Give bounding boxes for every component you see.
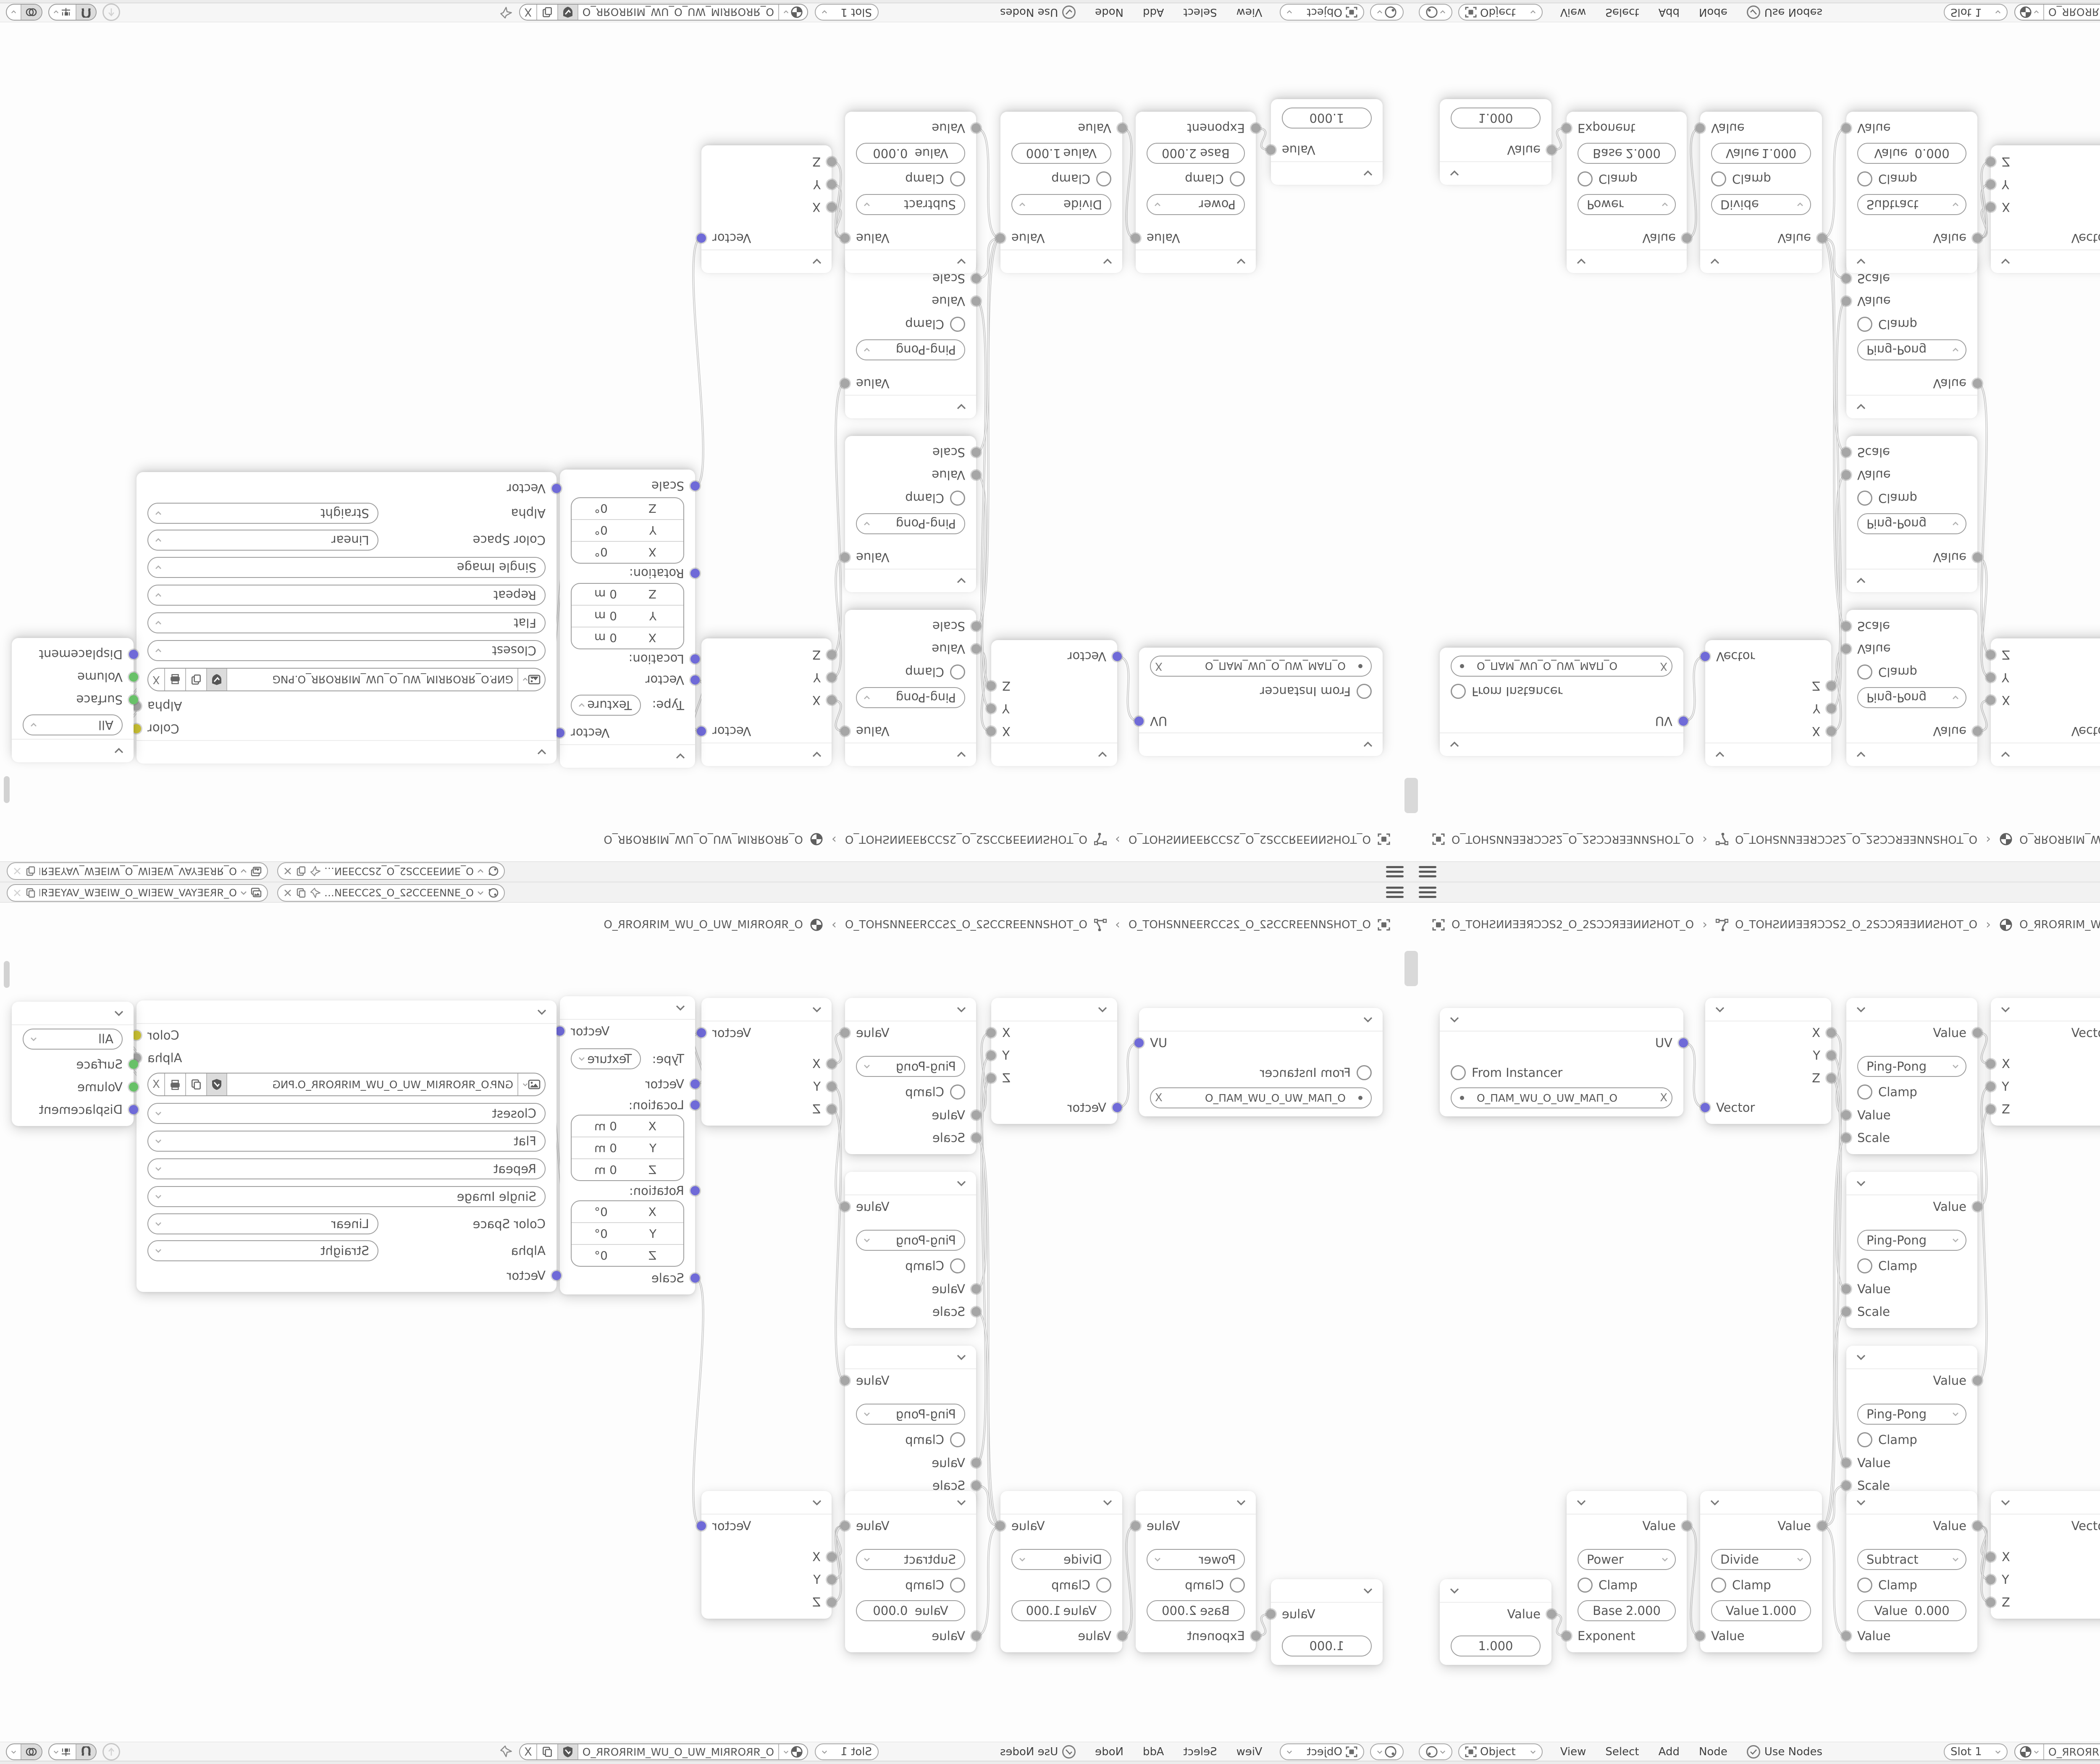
node-header[interactable] <box>12 1002 134 1025</box>
material-slot-dropdown[interactable]: Slot 1 <box>815 1743 879 1760</box>
copy-icon[interactable] <box>296 887 307 898</box>
unlink-button[interactable]: X <box>520 5 536 20</box>
checkbox-clamp[interactable]: Clamp <box>1700 1573 1822 1597</box>
dropdown[interactable]: Divide <box>1700 191 1822 218</box>
dropdown[interactable]: Power <box>1136 191 1256 218</box>
node-header[interactable] <box>701 249 832 273</box>
overlays-icon[interactable] <box>21 1744 42 1759</box>
editor-type-button[interactable] <box>1370 4 1404 21</box>
scene-selector[interactable]: O_ƎͶͶƎƎƆƆS2_O_2SƆƆƎƎͶ… <box>277 862 505 880</box>
node-header[interactable] <box>701 998 832 1021</box>
node-collapse-icon[interactable] <box>536 1009 547 1015</box>
node-collapse-icon[interactable] <box>1856 259 1866 265</box>
dropdown[interactable]: Closest <box>136 637 556 664</box>
region-edge-handle[interactable] <box>1411 778 1418 813</box>
dropdown[interactable]: Ping-Pong <box>845 684 976 711</box>
node-header[interactable] <box>1846 998 1977 1021</box>
node-collapse-icon[interactable] <box>1097 1006 1108 1013</box>
node-uvmap[interactable]: UVFrom InstancerO_ПAM_WU_O_UW_MAП_OX <box>1139 648 1383 756</box>
node-collapse-icon[interactable] <box>1102 1499 1113 1506</box>
vector-xyz-fields[interactable]: X0 mY0 mZ0 m <box>560 1115 695 1181</box>
node-collapse-icon[interactable] <box>1714 1006 1725 1013</box>
node-header[interactable] <box>560 744 695 768</box>
node-header[interactable] <box>1846 1172 1977 1195</box>
menu-add[interactable]: Add <box>1659 6 1680 18</box>
view-layer-selector[interactable]: O_ЯRƎEYAV_WƎEIW_O_WIƎEW_VAYƎEЯR_O <box>7 862 268 880</box>
node-collapse-icon[interactable] <box>1449 742 1460 748</box>
node-collapse-icon[interactable] <box>536 749 547 756</box>
node-pp2[interactable]: ValuePing-PongClampValueScale <box>1846 436 1977 592</box>
checkbox-clamp[interactable]: Clamp <box>1846 660 1977 684</box>
node-header[interactable] <box>12 739 134 762</box>
checkbox-clamp[interactable]: Clamp <box>1846 167 1977 191</box>
node-header[interactable] <box>1991 1491 2100 1515</box>
node-collapse-icon[interactable] <box>675 1005 686 1011</box>
value-field[interactable]: 1.000 <box>1271 1632 1383 1660</box>
menu-node[interactable]: Node <box>1095 6 1123 18</box>
dropdown[interactable]: Subtract <box>845 191 976 218</box>
dropdown[interactable]: Ping-Pong <box>1846 1053 1977 1080</box>
labeled-dropdown[interactable]: AlphaStraight <box>136 1237 556 1264</box>
value-field[interactable]: 1.000 <box>1440 104 1551 132</box>
node-pp3[interactable]: ValuePing-PongClampValueScale <box>1846 262 1977 418</box>
dropdown[interactable]: Ping-Pong <box>845 1400 976 1428</box>
node-pp2[interactable]: ValuePing-PongClampValueScale <box>845 436 976 592</box>
node-sepxyz[interactable]: XYZVector <box>1705 640 1831 766</box>
node-header[interactable] <box>845 249 976 273</box>
material-browse-button[interactable] <box>2015 5 2044 20</box>
image-datablock[interactable]: GИP.O_ЯROЯRIM_WU_O_UW_MIЯROЯR_O.PNGX <box>136 1069 556 1100</box>
node-collapse-icon[interactable] <box>1856 1354 1866 1360</box>
checkbox-clamp[interactable]: Clamp <box>1136 167 1256 191</box>
node-mapping[interactable]: VectorType:TextureVectorLocation:X0 mY0 … <box>560 470 695 768</box>
node-power[interactable]: ValuePowerClampBase2.000Exponent <box>1136 112 1256 273</box>
node-power[interactable]: ValuePowerClampBase2.000Exponent <box>1567 1491 1687 1652</box>
menu-view[interactable]: View <box>1236 1746 1263 1758</box>
node-combine_top[interactable]: VectorXYZ <box>701 998 832 1126</box>
checkbox-clamp[interactable]: Clamp <box>1000 1573 1122 1597</box>
node-header[interactable] <box>1271 161 1383 185</box>
menu-node[interactable]: Node <box>1699 6 1727 18</box>
node-collapse-icon[interactable] <box>1102 259 1113 265</box>
node-header[interactable] <box>845 569 976 592</box>
node-combine_b[interactable]: VectorXYZ <box>701 1491 832 1619</box>
snap-settings-icon[interactable] <box>49 1744 76 1759</box>
dropdown[interactable]: All <box>12 711 134 739</box>
node-pp3[interactable]: ValuePing-PongClampValueScale <box>1846 1346 1977 1502</box>
node-header[interactable] <box>1000 1491 1122 1515</box>
node-value_b[interactable]: Value1.000 <box>1271 1579 1383 1665</box>
node-sepxyz[interactable]: XYZVector <box>991 640 1117 766</box>
menu-node[interactable]: Node <box>1699 1746 1727 1758</box>
node-header[interactable] <box>845 1346 976 1369</box>
value-field[interactable]: Base2.000 <box>1567 1597 1687 1625</box>
material-slot-dropdown[interactable]: Slot 1 <box>1944 1743 2008 1760</box>
value-field[interactable]: Value1.000 <box>1700 139 1822 167</box>
labeled-dropdown[interactable]: Color SpaceLinear <box>136 1210 556 1237</box>
checkbox-clamp[interactable]: Clamp <box>845 1254 976 1278</box>
node-combine_b[interactable]: VectorXYZ <box>1991 1491 2100 1619</box>
node-collapse-icon[interactable] <box>2000 259 2011 265</box>
node-subtract[interactable]: ValueSubtractClampValue0.000Value <box>1846 112 1977 273</box>
close-icon[interactable]: X <box>1656 656 1672 676</box>
dropdown[interactable]: Ping-Pong <box>1846 1226 1977 1254</box>
menu-hamburger-icon[interactable] <box>1386 887 1404 898</box>
node-collapse-icon[interactable] <box>1362 742 1373 748</box>
node-collapse-icon[interactable] <box>1449 171 1460 177</box>
checkbox-clamp[interactable]: Clamp <box>845 1428 976 1452</box>
node-header[interactable] <box>136 1000 556 1024</box>
node-header[interactable] <box>701 1491 832 1515</box>
node-header[interactable] <box>1705 998 1831 1021</box>
close-icon[interactable] <box>283 888 292 898</box>
menu-select[interactable]: Select <box>1605 1746 1639 1758</box>
view-layer-selector[interactable]: O_ЯRƎEYAV_WƎEIW_O_WIƎEW_VAYƎEЯR_O <box>7 884 268 902</box>
use-nodes-toggle[interactable]: Use Nodes <box>1000 5 1076 19</box>
node-collapse-icon[interactable] <box>956 1006 967 1013</box>
node-pp3[interactable]: ValuePing-PongClampValueScale <box>845 1346 976 1502</box>
node-collapse-icon[interactable] <box>1709 1499 1720 1506</box>
node-header[interactable] <box>1846 1491 1977 1515</box>
node-pp1[interactable]: ValuePing-PongClampValueScale <box>845 610 976 766</box>
menu-add[interactable]: Add <box>1143 1746 1164 1758</box>
vector-xyz-fields[interactable]: X0°Y0°Z0° <box>560 497 695 564</box>
node-header[interactable] <box>1440 1008 1683 1032</box>
node-collapse-icon[interactable] <box>1856 1180 1866 1186</box>
value-field[interactable]: Value1.000 <box>1000 139 1122 167</box>
node-header[interactable] <box>991 998 1117 1021</box>
checkbox-clamp[interactable]: Clamp <box>845 660 976 684</box>
copy-icon[interactable] <box>296 866 307 877</box>
node-collapse-icon[interactable] <box>1576 1499 1587 1506</box>
node-collapse-icon[interactable] <box>1362 1588 1373 1594</box>
uvmap-selector[interactable]: O_ПAM_WU_O_UW_MAП_OX <box>1139 1084 1383 1111</box>
menu-add[interactable]: Add <box>1659 1746 1680 1758</box>
fake-user-shield-icon[interactable] <box>206 669 226 690</box>
menu-hamburger-icon[interactable] <box>1419 887 1436 898</box>
scene-selector[interactable]: O_ƎͶͶƎƎƆƆS2_O_2SƆƆƎƎͶ… <box>277 884 505 902</box>
image-datablock[interactable]: GИP.O_ЯROЯRIM_WU_O_UW_MIЯROЯR_O.PNGX <box>136 664 556 695</box>
node-sepxyz[interactable]: XYZVector <box>991 998 1117 1124</box>
node-collapse-icon[interactable] <box>956 578 967 584</box>
node-collapse-icon[interactable] <box>113 748 124 754</box>
menu-view[interactable]: View <box>1560 1746 1586 1758</box>
value-field[interactable]: Value1.000 <box>1000 1597 1122 1625</box>
node-collapse-icon[interactable] <box>956 404 967 410</box>
node-header[interactable] <box>1440 732 1683 756</box>
node-collapse-icon[interactable] <box>1856 752 1866 758</box>
value-field[interactable]: Base2.000 <box>1567 139 1687 167</box>
unlink-button[interactable]: X <box>520 1744 536 1759</box>
copy-icon[interactable] <box>25 887 36 898</box>
material-slot-dropdown[interactable]: Slot 1 <box>815 4 879 21</box>
material-browse-button[interactable] <box>778 5 807 20</box>
node-combine_top[interactable]: VectorXYZ <box>1991 638 2100 766</box>
editor-type-button[interactable] <box>1419 4 1452 21</box>
material-browse-button[interactable] <box>778 1744 807 1759</box>
dropdown[interactable]: Flat <box>136 609 556 637</box>
dropdown[interactable]: Divide <box>1000 191 1122 218</box>
node-collapse-icon[interactable] <box>1449 1016 1460 1023</box>
use-nodes-toggle[interactable]: Use Nodes <box>1747 1745 1822 1759</box>
copy-icon[interactable] <box>536 1744 557 1759</box>
node-matout[interactable]: AllSurfaceVolumeDisplacement <box>12 1002 134 1126</box>
node-value_b[interactable]: Value1.000 <box>1440 99 1551 185</box>
node-header[interactable] <box>560 996 695 1020</box>
fake-user-shield-icon[interactable] <box>206 1074 226 1095</box>
dropdown[interactable]: Flat <box>136 1127 556 1155</box>
node-header[interactable] <box>1991 743 2100 766</box>
checkbox-clamp[interactable]: Clamp <box>1846 312 1977 336</box>
node-combine_b[interactable]: VectorXYZ <box>701 145 832 273</box>
node-header[interactable] <box>1440 161 1551 185</box>
node-header[interactable] <box>1846 743 1977 766</box>
pin-icon[interactable] <box>500 1745 512 1759</box>
overlays-dropdown[interactable] <box>7 1744 21 1759</box>
node-collapse-icon[interactable] <box>956 1180 967 1186</box>
checkbox-clamp[interactable]: Clamp <box>1700 167 1822 191</box>
value-field[interactable]: Base2.000 <box>1136 139 1256 167</box>
node-pp2[interactable]: ValuePing-PongClampValueScale <box>1846 1172 1977 1328</box>
region-edge-handle[interactable] <box>1404 951 1411 986</box>
node-divide[interactable]: ValueDivideClampValue1.000Value <box>1700 112 1822 273</box>
node-power[interactable]: ValuePowerClampBase2.000Exponent <box>1567 112 1687 273</box>
snap-settings-icon[interactable] <box>49 5 76 20</box>
node-combine_top[interactable]: VectorXYZ <box>701 638 832 766</box>
node-header[interactable] <box>1139 732 1383 756</box>
use-nodes-toggle[interactable]: Use Nodes <box>1000 1745 1076 1759</box>
node-mapping[interactable]: VectorType:TextureVectorLocation:X0 mY0 … <box>560 996 695 1294</box>
checkbox-clamp[interactable]: Clamp <box>845 1080 976 1104</box>
uvmap-selector[interactable]: O_ПAM_WU_O_UW_MAП_OX <box>1440 653 1683 680</box>
checkbox-clamp[interactable]: Clamp <box>845 1573 976 1597</box>
close-icon[interactable]: X <box>148 669 164 690</box>
checkbox-clamp[interactable]: Clamp <box>1136 1573 1256 1597</box>
dropdown[interactable]: Ping-Pong <box>845 510 976 538</box>
menu-hamburger-icon[interactable] <box>1419 866 1436 878</box>
checkbox-from-instancer[interactable]: From Instancer <box>1139 680 1383 703</box>
magnet-icon[interactable] <box>76 1744 96 1759</box>
uvmap-selector[interactable]: O_ПAM_WU_O_UW_MAП_OX <box>1440 1084 1683 1111</box>
menu-select[interactable]: Select <box>1183 1746 1217 1758</box>
node-header[interactable] <box>1136 1491 1256 1515</box>
close-icon[interactable]: X <box>148 1074 164 1095</box>
overlays-dropdown[interactable] <box>7 5 21 20</box>
node-collapse-icon[interactable] <box>1856 404 1866 410</box>
region-edge-handle[interactable] <box>1404 778 1411 813</box>
node-collapse-icon[interactable] <box>2000 752 2011 758</box>
checkbox-clamp[interactable]: Clamp <box>1846 1573 1977 1597</box>
value-field[interactable]: Value0.000 <box>1846 139 1977 167</box>
node-subtract[interactable]: ValueSubtractClampValue0.000Value <box>845 1491 976 1652</box>
node-divide[interactable]: ValueDivideClampValue1.000Value <box>1000 1491 1122 1652</box>
node-collapse-icon[interactable] <box>2000 1499 2011 1506</box>
editor-type-button[interactable] <box>1419 1743 1452 1760</box>
node-divide[interactable]: ValueDivideClampValue1.000Value <box>1000 112 1122 273</box>
checkbox-clamp[interactable]: Clamp <box>1846 1428 1977 1452</box>
node-header[interactable] <box>1567 1491 1687 1515</box>
dropdown[interactable]: Subtract <box>1846 191 1977 218</box>
node-header[interactable] <box>845 1172 976 1195</box>
dropdown[interactable]: Ping-Pong <box>845 1226 976 1254</box>
node-matout[interactable]: AllSurfaceVolumeDisplacement <box>12 638 134 762</box>
value-field[interactable]: Value0.000 <box>1846 1597 1977 1625</box>
dropdown[interactable]: Single Image <box>136 1183 556 1210</box>
pack-icon[interactable] <box>164 669 185 690</box>
node-header[interactable] <box>1846 395 1977 418</box>
scrollbar[interactable] <box>4 961 10 988</box>
checkbox-from-instancer[interactable]: From Instancer <box>1139 1061 1383 1084</box>
node-collapse-icon[interactable] <box>113 1010 124 1016</box>
close-icon[interactable]: X <box>1656 1088 1672 1108</box>
node-collapse-icon[interactable] <box>811 259 822 265</box>
node-header[interactable] <box>1440 1579 1551 1603</box>
shader-type-dropdown[interactable]: Object <box>1458 1743 1543 1760</box>
value-field[interactable]: Base2.000 <box>1136 1597 1256 1625</box>
value-field[interactable]: 1.000 <box>1440 1632 1551 1660</box>
node-header[interactable] <box>1991 249 2100 273</box>
checkbox-from-instancer[interactable]: From Instancer <box>1440 680 1683 703</box>
node-collapse-icon[interactable] <box>1856 578 1866 584</box>
menu-view[interactable]: View <box>1560 6 1586 18</box>
node-collapse-icon[interactable] <box>1856 1499 1866 1506</box>
checkbox-clamp[interactable]: Clamp <box>1567 1573 1687 1597</box>
material-name[interactable]: O_ЯROЯRIM_WU_O_UW_MIЯROЯR_O <box>2044 5 2100 20</box>
fake-user-shield-icon[interactable] <box>557 1744 577 1759</box>
node-collapse-icon[interactable] <box>1714 752 1725 758</box>
node-collapse-icon[interactable] <box>1236 1499 1247 1506</box>
menu-select[interactable]: Select <box>1605 6 1639 18</box>
node-header[interactable] <box>701 743 832 766</box>
node-header[interactable] <box>1139 1008 1383 1032</box>
shader-type-dropdown[interactable]: Object <box>1280 1743 1364 1760</box>
dropdown[interactable]: Subtract <box>1846 1546 1977 1573</box>
menu-select[interactable]: Select <box>1183 6 1217 18</box>
node-collapse-icon[interactable] <box>1449 1588 1460 1594</box>
labeled-dropdown[interactable]: AlphaStraight <box>136 500 556 527</box>
checkbox-from-instancer[interactable]: From Instancer <box>1440 1061 1683 1084</box>
node-collapse-icon[interactable] <box>1362 171 1373 177</box>
node-collapse-icon[interactable] <box>956 1354 967 1360</box>
copy-icon[interactable] <box>185 1074 206 1095</box>
node-uvmap[interactable]: UVFrom InstancerO_ПAM_WU_O_UW_MAП_OX <box>1440 1008 1683 1116</box>
copy-icon[interactable] <box>25 866 36 877</box>
node-divide[interactable]: ValueDivideClampValue1.000Value <box>1700 1491 1822 1652</box>
type-dropdown[interactable]: Type:Texture <box>560 1045 695 1073</box>
node-header[interactable] <box>845 998 976 1021</box>
material-name[interactable]: O_ЯROЯRIM_WU_O_UW_MIЯROЯR_O <box>2044 1744 2100 1759</box>
node-combine_top[interactable]: VectorXYZ <box>1991 998 2100 1126</box>
material-name[interactable]: O_ЯROЯRIM_WU_O_UW_MIЯROЯR_O <box>577 5 778 20</box>
node-imgtex[interactable]: ColorAlphaGИP.O_ЯROЯRIM_WU_O_UW_MIЯROЯR_… <box>136 472 556 764</box>
node-header[interactable] <box>991 743 1117 766</box>
node-collapse-icon[interactable] <box>956 259 967 265</box>
type-dropdown[interactable]: Type:Texture <box>560 691 695 719</box>
node-value_b[interactable]: Value1.000 <box>1271 99 1383 185</box>
close-icon[interactable]: X <box>1151 656 1167 676</box>
dropdown[interactable]: Power <box>1567 191 1687 218</box>
node-header[interactable] <box>1846 249 1977 273</box>
node-sepxyz[interactable]: XYZVector <box>1705 998 1831 1124</box>
value-field[interactable]: Value0.000 <box>845 1597 976 1625</box>
dropdown[interactable]: Divide <box>1000 1546 1122 1573</box>
shader-type-dropdown[interactable]: Object <box>1458 4 1543 21</box>
editor-type-button[interactable] <box>1370 1743 1404 1760</box>
vector-xyz-fields[interactable]: X0 mY0 mZ0 m <box>560 583 695 649</box>
node-collapse-icon[interactable] <box>675 753 686 760</box>
node-header[interactable] <box>1846 569 1977 592</box>
material-name[interactable]: O_ЯROЯRIM_WU_O_UW_MIЯROЯR_O <box>577 1744 778 1759</box>
dropdown[interactable]: Ping-Pong <box>1846 336 1977 364</box>
node-header[interactable] <box>1700 1491 1822 1515</box>
node-header[interactable] <box>1846 1346 1977 1369</box>
checkbox-clamp[interactable]: Clamp <box>1000 167 1122 191</box>
labeled-dropdown[interactable]: Color SpaceLinear <box>136 527 556 554</box>
value-field[interactable]: Value1.000 <box>1700 1597 1822 1625</box>
node-header[interactable] <box>1700 249 1822 273</box>
material-slot-dropdown[interactable]: Slot 1 <box>1944 4 2008 21</box>
node-collapse-icon[interactable] <box>1856 1006 1866 1013</box>
node-collapse-icon[interactable] <box>1709 259 1720 265</box>
close-icon[interactable]: X <box>1151 1088 1167 1108</box>
node-header[interactable] <box>1567 249 1687 273</box>
dropdown[interactable]: Ping-Pong <box>845 336 976 364</box>
node-collapse-icon[interactable] <box>1236 259 1247 265</box>
uvmap-selector[interactable]: O_ПAM_WU_O_UW_MAП_OX <box>1139 653 1383 680</box>
dropdown[interactable]: Ping-Pong <box>1846 684 1977 711</box>
checkbox-clamp[interactable]: Clamp <box>1567 167 1687 191</box>
menu-add[interactable]: Add <box>1143 6 1164 18</box>
shader-type-dropdown[interactable]: Object <box>1280 4 1364 21</box>
overlays-icon[interactable] <box>21 5 42 20</box>
node-header[interactable] <box>1991 998 2100 1021</box>
checkbox-clamp[interactable]: Clamp <box>845 167 976 191</box>
material-browse-button[interactable] <box>2015 1744 2044 1759</box>
node-header[interactable] <box>845 743 976 766</box>
checkbox-clamp[interactable]: Clamp <box>1846 1254 1977 1278</box>
dropdown[interactable]: Repeat <box>136 581 556 609</box>
use-nodes-toggle[interactable]: Use Nodes <box>1747 5 1822 19</box>
pack-icon[interactable] <box>164 1074 185 1095</box>
scrollbar[interactable] <box>4 776 10 803</box>
node-uvmap[interactable]: UVFrom InstancerO_ПAM_WU_O_UW_MAП_OX <box>1440 648 1683 756</box>
menu-view[interactable]: View <box>1236 6 1263 18</box>
pin-icon[interactable] <box>310 887 321 898</box>
region-edge-handle[interactable] <box>1411 951 1418 986</box>
node-collapse-icon[interactable] <box>811 1499 822 1506</box>
node-collapse-icon[interactable] <box>2000 1006 2011 1013</box>
dropdown[interactable]: Subtract <box>845 1546 976 1573</box>
node-subtract[interactable]: ValueSubtractClampValue0.000Value <box>1846 1491 1977 1652</box>
magnet-icon[interactable] <box>76 5 96 20</box>
node-collapse-icon[interactable] <box>811 1006 822 1013</box>
node-header[interactable] <box>1271 1579 1383 1603</box>
dropdown[interactable]: Ping-Pong <box>845 1053 976 1080</box>
dropdown[interactable]: Divide <box>1700 1546 1822 1573</box>
close-icon[interactable] <box>283 866 292 876</box>
value-field[interactable]: 1.000 <box>1271 104 1383 132</box>
dropdown[interactable]: Power <box>1136 1546 1256 1573</box>
node-header[interactable] <box>845 1491 976 1515</box>
node-uvmap[interactable]: UVFrom InstancerO_ПAM_WU_O_UW_MAП_OX <box>1139 1008 1383 1116</box>
node-imgtex[interactable]: ColorAlphaGИP.O_ЯROЯRIM_WU_O_UW_MIЯROЯR_… <box>136 1000 556 1292</box>
node-subtract[interactable]: ValueSubtractClampValue0.000Value <box>845 112 976 273</box>
checkbox-clamp[interactable]: Clamp <box>1846 486 1977 510</box>
dropdown[interactable]: Repeat <box>136 1155 556 1183</box>
node-pp1[interactable]: ValuePing-PongClampValueScale <box>845 998 976 1154</box>
node-power[interactable]: ValuePowerClampBase2.000Exponent <box>1136 1491 1256 1652</box>
checkbox-clamp[interactable]: Clamp <box>1846 1080 1977 1104</box>
